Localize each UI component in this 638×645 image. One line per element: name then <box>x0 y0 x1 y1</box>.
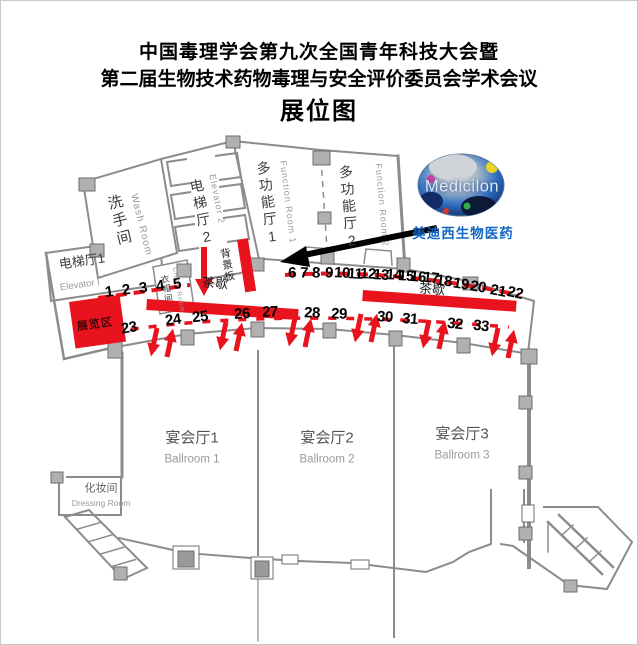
booth-number: 7 <box>300 264 308 281</box>
tea-break-left-label: 茶歇 <box>202 276 229 293</box>
ballroom3-cn: 宴会厅3 <box>435 425 488 442</box>
booth-number: 25 <box>191 308 208 327</box>
ballroom1-cn: 宴会厅1 <box>165 429 218 446</box>
map-title: 展位图 <box>1 91 637 126</box>
booth-number: 29 <box>331 305 347 323</box>
booth-number: 6 <box>288 264 296 281</box>
ballroom2-en: Ballroom 2 <box>300 453 355 466</box>
booth-number: 27 <box>262 303 278 321</box>
booth-number: 31 <box>402 310 419 328</box>
ballroom1-en: Ballroom 1 <box>165 453 220 466</box>
dressing-en: Dressing Room <box>72 499 131 509</box>
booth-number: 8 <box>312 264 320 281</box>
booth-number: 18 <box>435 271 453 290</box>
booth-number: 30 <box>377 308 394 326</box>
medicilon-logo-text: Medicilon <box>425 178 499 197</box>
conference-title-line1: 中国毒理学会第九次全国青年科技大会暨 <box>1 37 637 64</box>
ballroom3-en: Ballroom 3 <box>435 449 490 462</box>
booth-number: 22 <box>506 283 525 303</box>
floor-plan-page: 中国毒理学会第九次全国青年科技大会暨 第二届生物技术药物毒理与安全评价委员会学术… <box>0 0 638 645</box>
booth-number: 24 <box>164 310 182 329</box>
booth-number: 33 <box>472 317 489 336</box>
booth-number: 26 <box>234 305 251 323</box>
booth-number: 32 <box>446 315 463 334</box>
medicilon-cn-label: 美迪西生物医药 <box>412 226 514 242</box>
booth-number: 9 <box>325 264 334 281</box>
ballroom2-cn: 宴会厅2 <box>300 429 353 446</box>
dressing-cn: 化妆间 <box>85 483 118 496</box>
booth-number: 19 <box>452 274 470 293</box>
booth-number: 28 <box>304 304 320 322</box>
booth-number: 20 <box>469 277 487 296</box>
conference-title-line2: 第二届生物技术药物毒理与安全评价委员会学术会议 <box>1 64 637 91</box>
booth-number: 23 <box>120 318 138 337</box>
booth-number: 21 <box>489 281 508 301</box>
